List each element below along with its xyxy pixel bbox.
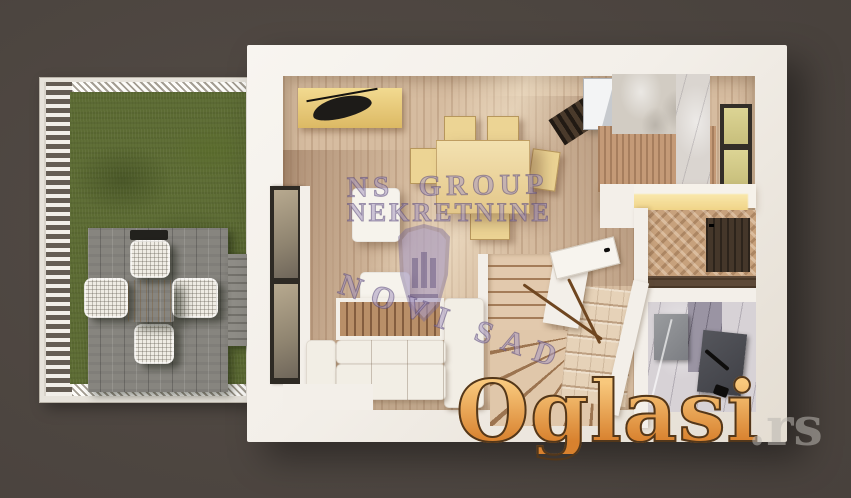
left-window-glass-upper bbox=[274, 190, 298, 278]
marble-column bbox=[676, 74, 710, 194]
left-window-frame bbox=[270, 186, 302, 384]
white-cabinet bbox=[600, 184, 634, 228]
patio-table bbox=[128, 280, 174, 322]
shield-glyph-tower-3 bbox=[430, 258, 436, 288]
shield-glyph-tower-2 bbox=[421, 252, 427, 288]
top-right-window-glass-upper bbox=[724, 108, 748, 144]
watermark-portal-name: Oglasi bbox=[456, 370, 759, 454]
patio-chair-south bbox=[134, 324, 174, 364]
bathroom-top-wall bbox=[640, 288, 756, 302]
top-right-window-frame bbox=[720, 104, 752, 188]
deck-doormat bbox=[130, 230, 168, 240]
sofa-back-cushions bbox=[336, 340, 446, 364]
real-estate-render-photo: NS GROUP NEKRETNINE NOVI SAD Oglasi .rs bbox=[0, 0, 851, 498]
shield-glyph-tower-1 bbox=[412, 258, 418, 288]
patio-chair-east bbox=[172, 278, 218, 318]
watermark-portal-tld: .rs bbox=[748, 402, 823, 454]
patio-chair-north bbox=[130, 240, 170, 278]
left-window-glass-lower bbox=[274, 284, 298, 378]
fence-left-railing bbox=[44, 82, 72, 396]
bottom-wall-patch bbox=[283, 384, 373, 410]
entry-door bbox=[706, 218, 750, 272]
fence-top bbox=[46, 82, 246, 92]
patio-chair-west bbox=[84, 278, 128, 318]
watermark-agency-line2: NEKRETNINE bbox=[347, 198, 552, 228]
top-right-window-glass-lower bbox=[724, 150, 748, 184]
